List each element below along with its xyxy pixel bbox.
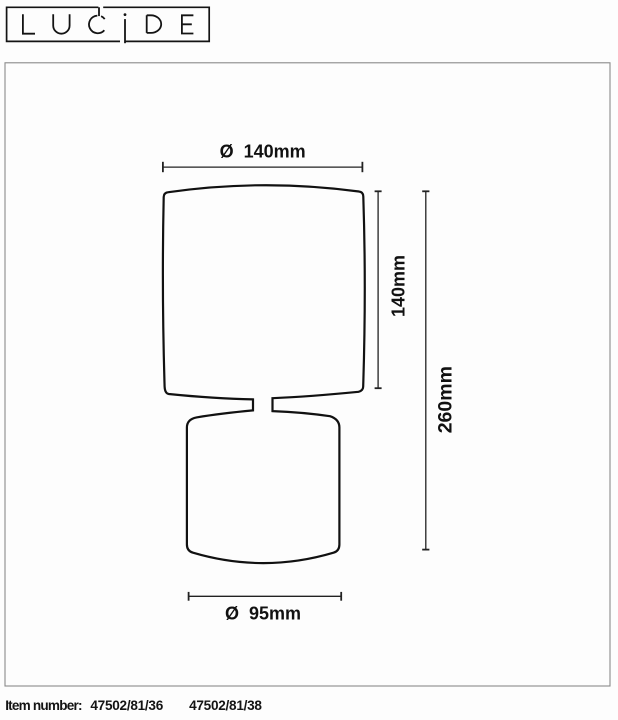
svg-text:260mm: 260mm bbox=[434, 366, 456, 433]
svg-text:140mm: 140mm bbox=[388, 255, 408, 317]
svg-text:Ø 140mm: Ø 140mm bbox=[220, 142, 306, 162]
svg-text:47502/81/36: 47502/81/36 bbox=[90, 698, 163, 713]
svg-text:47502/81/38: 47502/81/38 bbox=[189, 698, 262, 713]
svg-text:Ø 95mm: Ø 95mm bbox=[225, 603, 301, 623]
svg-text:Item number:: Item number: bbox=[5, 698, 82, 713]
